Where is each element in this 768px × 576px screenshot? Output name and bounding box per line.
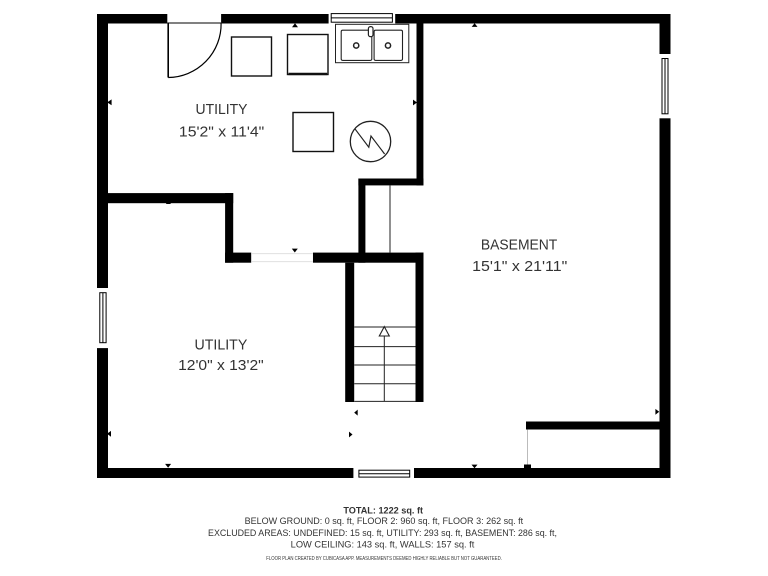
svg-text:BASEMENT: BASEMENT [481, 236, 557, 253]
svg-text:TOTAL: 1222 sq. ft: TOTAL: 1222 sq. ft [343, 506, 423, 516]
svg-text:EXCLUDED AREAS: UNDEFINED: 15: EXCLUDED AREAS: UNDEFINED: 15 sq. ft, UT… [208, 528, 557, 538]
svg-text:12'0" x 13'2": 12'0" x 13'2" [178, 357, 264, 374]
svg-text:BELOW GROUND: 0 sq. ft, FLOOR: BELOW GROUND: 0 sq. ft, FLOOR 2: 960 sq.… [245, 516, 524, 526]
svg-text:UTILITY: UTILITY [196, 101, 248, 118]
svg-text:UTILITY: UTILITY [195, 336, 248, 353]
svg-text:15'1" x 21'11": 15'1" x 21'11" [472, 258, 567, 275]
svg-text:15'2" x 11'4": 15'2" x 11'4" [179, 124, 264, 141]
svg-text:FLOOR PLAN CREATED BY CUBICASA: FLOOR PLAN CREATED BY CUBICASA APP. MEAS… [266, 556, 502, 562]
svg-text:LOW CEILING: 143 sq. ft, WALLS: LOW CEILING: 143 sq. ft, WALLS: 157 sq. … [291, 540, 475, 550]
